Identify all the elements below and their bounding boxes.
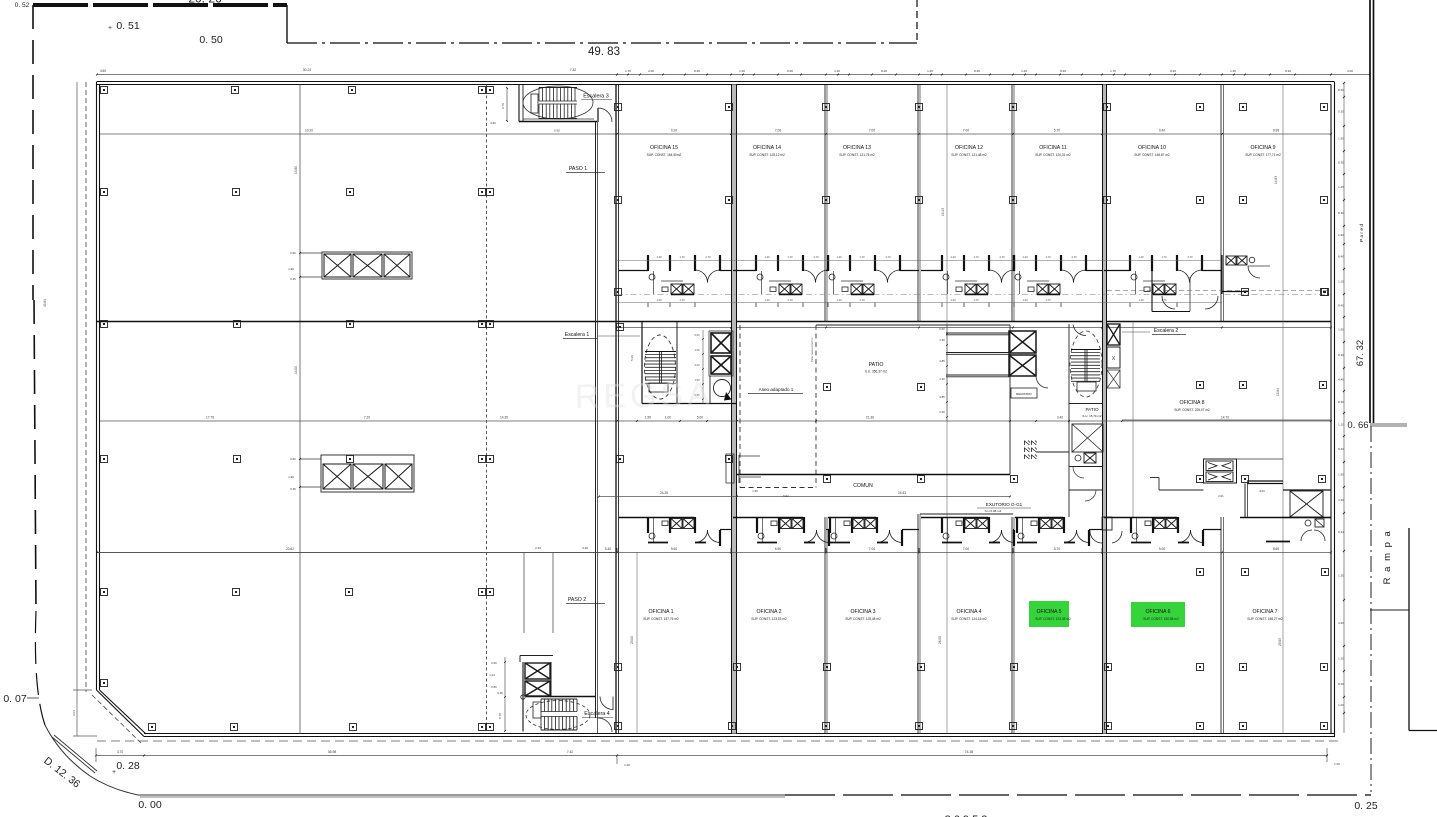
svg-text:PASO 2: PASO 2: [568, 597, 586, 603]
svg-text:1.30: 1.30: [939, 338, 945, 342]
svg-text:67. 32: 67. 32: [1355, 340, 1366, 366]
svg-text:1.40: 1.40: [836, 255, 842, 259]
svg-text:Escalera 4: Escalera 4: [584, 711, 609, 717]
svg-text:10.20: 10.20: [305, 129, 313, 133]
svg-text:2.70: 2.70: [1071, 255, 1077, 259]
svg-text:REGSA: REGSA: [574, 376, 714, 416]
svg-text:1.00: 1.00: [665, 416, 671, 420]
svg-text:8.40: 8.40: [1338, 682, 1344, 686]
svg-text:7.00: 7.00: [775, 129, 781, 133]
svg-text:19.43: 19.43: [941, 208, 945, 216]
svg-text:1.00: 1.00: [1338, 703, 1344, 707]
svg-text:OFICINA 11: OFICINA 11: [1039, 145, 1067, 151]
svg-text:OFICINA 12: OFICINA 12: [955, 145, 983, 151]
svg-text:1.70: 1.70: [787, 298, 793, 302]
svg-text:S.U. 15,79 m2: S.U. 15,79 m2: [1082, 414, 1102, 418]
svg-text:1.90: 1.90: [288, 475, 294, 479]
svg-text:8.20: 8.20: [974, 69, 980, 73]
svg-text:1.90: 1.90: [288, 267, 294, 271]
svg-text:SUP. CONST. 121,76 m2: SUP. CONST. 121,76 m2: [839, 153, 875, 157]
svg-text:14.35: 14.35: [500, 416, 508, 420]
svg-text:4.60: 4.60: [100, 69, 106, 73]
svg-text:5.00: 5.00: [697, 416, 703, 420]
svg-text:0.80: 0.80: [491, 685, 497, 689]
svg-text:49.84: 49.84: [43, 299, 47, 307]
svg-text:3.00: 3.00: [1347, 69, 1353, 73]
svg-text:1.70: 1.70: [679, 255, 685, 259]
svg-text:0.60: 0.60: [939, 327, 945, 331]
svg-text:0. 52: 0. 52: [15, 2, 30, 9]
svg-text:1.30: 1.30: [1338, 574, 1344, 578]
svg-text:4.40: 4.40: [1338, 498, 1344, 502]
svg-text:13.80: 13.80: [294, 166, 298, 174]
svg-text:8.79: 8.79: [501, 103, 505, 109]
svg-text:Aseo adaptado 1: Aseo adaptado 1: [759, 387, 794, 392]
svg-text:1.70: 1.70: [1045, 298, 1051, 302]
svg-text:5.92: 5.92: [554, 129, 560, 133]
svg-text:8.20: 8.20: [787, 69, 793, 73]
svg-text:7.42: 7.42: [570, 68, 576, 72]
svg-text:Escalera 1: Escalera 1: [565, 332, 590, 338]
svg-text:1.40: 1.40: [1022, 255, 1028, 259]
svg-text:4.03: 4.03: [1259, 489, 1265, 493]
svg-text:8.40: 8.40: [1338, 255, 1344, 259]
svg-text:5.70: 5.70: [1054, 129, 1060, 133]
svg-text:9.04: 9.04: [72, 710, 76, 716]
svg-text:OFICINA 7: OFICINA 7: [1252, 609, 1277, 615]
svg-text:8.30: 8.30: [1338, 161, 1344, 165]
svg-text:4.85: 4.85: [939, 395, 945, 399]
svg-text:SUP. CONST. 148,87 m2: SUP. CONST. 148,87 m2: [1134, 153, 1170, 157]
svg-text:24.43: 24.43: [898, 491, 906, 495]
svg-text:0. 00: 0. 00: [138, 799, 162, 811]
svg-text:1.40: 1.40: [1138, 255, 1144, 259]
svg-text:2.00: 2.00: [648, 69, 654, 73]
svg-text:1.40: 1.40: [1138, 298, 1144, 302]
svg-text:P a r e d: P a r e d: [1359, 224, 1365, 242]
svg-text:8.60: 8.60: [1338, 88, 1344, 92]
svg-text:23.00: 23.00: [630, 636, 634, 644]
svg-text:9.95: 9.95: [1273, 129, 1279, 133]
svg-text:1.45: 1.45: [1338, 185, 1344, 189]
svg-text:5.92: 5.92: [783, 494, 789, 498]
svg-text:1.40: 1.40: [1021, 69, 1027, 73]
svg-text:1.70: 1.70: [1110, 69, 1116, 73]
svg-text:1.40: 1.40: [1230, 69, 1236, 73]
svg-text:OFICINA 15: OFICINA 15: [650, 145, 678, 151]
svg-text:OFICINA 8: OFICINA 8: [1179, 400, 1204, 406]
svg-text:2.01: 2.01: [1218, 494, 1224, 498]
svg-text:1.40: 1.40: [739, 69, 745, 73]
svg-text:1.40: 1.40: [656, 298, 662, 302]
svg-text:1.40: 1.40: [764, 255, 770, 259]
svg-text:4.40: 4.40: [1338, 621, 1344, 625]
svg-text:8.30: 8.30: [1338, 353, 1344, 357]
svg-text:1.90: 1.90: [1338, 473, 1344, 477]
svg-text:1.40: 1.40: [836, 298, 842, 302]
svg-text:1.70: 1.70: [787, 255, 793, 259]
svg-text:8.20: 8.20: [881, 69, 887, 73]
svg-text:Escalera 2: Escalera 2: [1154, 328, 1179, 334]
svg-text:SUP. CONST. 150,88 m2: SUP. CONST. 150,88 m2: [1143, 617, 1179, 621]
svg-text:SUP. CONST. 177,71 m2: SUP. CONST. 177,71 m2: [1245, 153, 1281, 157]
svg-text:0. 25: 0. 25: [1354, 800, 1378, 812]
svg-text:2.70: 2.70: [813, 255, 819, 259]
svg-text:1.40: 1.40: [950, 298, 956, 302]
svg-text:1.70: 1.70: [973, 298, 979, 302]
svg-text:6.90: 6.90: [775, 547, 781, 551]
svg-text:1.40: 1.40: [1022, 298, 1028, 302]
svg-text:0. 50: 0. 50: [199, 34, 223, 46]
svg-text:1.90: 1.90: [1338, 137, 1344, 141]
svg-text:8.30: 8.30: [1338, 400, 1344, 404]
svg-text:30.22: 30.22: [303, 68, 312, 72]
svg-text:0.45: 0.45: [290, 487, 296, 491]
svg-text:1.40: 1.40: [656, 255, 662, 259]
svg-text:S.U. 356,37 m2: S.U. 356,37 m2: [865, 370, 887, 374]
svg-text:OFICINA 10: OFICINA 10: [1138, 145, 1166, 151]
svg-text:0.45: 0.45: [290, 277, 296, 281]
svg-text:SUP. CONST. 164,50m2: SUP. CONST. 164,50m2: [647, 153, 682, 157]
svg-text:8.30: 8.30: [1338, 211, 1344, 215]
svg-text:1.50: 1.50: [752, 489, 758, 493]
svg-text:SUP. CONST. 123,03 m2: SUP. CONST. 123,03 m2: [751, 617, 787, 621]
svg-text:8.20: 8.20: [1170, 69, 1176, 73]
svg-text:1.50: 1.50: [645, 416, 651, 420]
svg-text:SUP. CONST. 125,12 m2: SUP. CONST. 125,12 m2: [749, 153, 785, 157]
svg-text:OFICINA 1: OFICINA 1: [648, 609, 673, 615]
svg-text:0.60: 0.60: [491, 661, 497, 665]
svg-text:21.36: 21.36: [866, 416, 874, 420]
svg-text:8.40: 8.40: [1338, 304, 1344, 308]
svg-text:OFICINA 2: OFICINA 2: [756, 609, 781, 615]
svg-text:0.60: 0.60: [290, 251, 296, 255]
svg-text:17.75: 17.75: [206, 416, 214, 420]
svg-text:2.70: 2.70: [1187, 255, 1193, 259]
svg-text:OFICINA 13: OFICINA 13: [843, 145, 871, 151]
svg-text:8.20: 8.20: [1060, 69, 1066, 73]
svg-text:1.70: 1.70: [973, 255, 979, 259]
svg-text:7.00: 7.00: [869, 129, 875, 133]
svg-text:1.44: 1.44: [489, 673, 495, 677]
svg-text:74.35: 74.35: [965, 750, 974, 754]
svg-text:14.63: 14.63: [1274, 176, 1278, 184]
svg-text:7.00: 7.00: [869, 547, 875, 551]
svg-text:1.90: 1.90: [1338, 328, 1344, 332]
svg-text:OFICINA 3: OFICINA 3: [850, 609, 875, 615]
svg-text:4.40: 4.40: [1338, 378, 1344, 382]
svg-text:3.70: 3.70: [117, 750, 123, 754]
svg-text:8.70: 8.70: [498, 713, 502, 719]
svg-text:5.30: 5.30: [1338, 110, 1344, 114]
svg-text:SUP. CONST. 157,76 m2: SUP. CONST. 157,76 m2: [643, 617, 679, 621]
svg-text:0. 66: 0. 66: [1347, 420, 1368, 431]
svg-text:SUP. CONST. 158,27 m2: SUP. CONST. 158,27 m2: [1247, 617, 1283, 621]
svg-text:1.70: 1.70: [1161, 255, 1167, 259]
svg-text:3.40: 3.40: [1057, 416, 1063, 420]
svg-text:7.42: 7.42: [567, 750, 573, 754]
svg-text:3.40: 3.40: [582, 546, 588, 550]
svg-text:SUP. CONST. 226,07 m2: SUP. CONST. 226,07 m2: [1174, 408, 1210, 412]
svg-text:EXUTORIO G-G1: EXUTORIO G-G1: [986, 502, 1023, 507]
svg-text:49. 83: 49. 83: [588, 46, 620, 58]
svg-text:2.30: 2.30: [939, 410, 945, 414]
svg-text:R a m p a: R a m p a: [1382, 530, 1393, 585]
svg-text:7.20: 7.20: [364, 416, 370, 420]
svg-text:1.00: 1.00: [1334, 762, 1340, 766]
svg-text:9.20: 9.20: [671, 129, 677, 133]
svg-text:1.70: 1.70: [1045, 255, 1051, 259]
svg-text:26.00: 26.00: [938, 636, 942, 644]
svg-text:1.40: 1.40: [834, 69, 840, 73]
svg-text:5.70: 5.70: [1054, 547, 1060, 551]
svg-text:7.00: 7.00: [963, 547, 969, 551]
svg-text:1.70: 1.70: [625, 69, 631, 73]
svg-text:0.45: 0.45: [497, 691, 503, 695]
svg-text:PATIO: PATIO: [869, 362, 884, 368]
svg-text:0.60: 0.60: [694, 333, 700, 337]
svg-text:8.20: 8.20: [1285, 69, 1291, 73]
svg-text:24.25: 24.25: [660, 491, 668, 495]
svg-text:14.00: 14.00: [294, 366, 298, 374]
svg-text:1.90: 1.90: [1338, 233, 1344, 237]
svg-text:2.70: 2.70: [885, 255, 891, 259]
svg-text:1.00: 1.00: [624, 763, 630, 767]
svg-text:1.25: 1.25: [927, 69, 933, 73]
svg-text:1.10: 1.10: [1338, 423, 1344, 427]
svg-text:9.60: 9.60: [671, 547, 677, 551]
svg-text:0. 51: 0. 51: [116, 20, 140, 32]
svg-text:COMUN: COMUN: [853, 483, 873, 489]
svg-text:0. 28: 0. 28: [116, 760, 140, 772]
svg-text:9.00: 9.00: [1159, 547, 1165, 551]
svg-text:5.40: 5.40: [605, 547, 611, 551]
svg-text:0.60: 0.60: [290, 457, 296, 461]
svg-text:1.70: 1.70: [679, 298, 685, 302]
svg-text:1.20: 1.20: [1338, 657, 1344, 661]
svg-text:OFICINA 14: OFICINA 14: [753, 145, 781, 151]
svg-text:8.40: 8.40: [1338, 447, 1344, 451]
svg-text:+: +: [108, 25, 112, 32]
svg-text:1.10: 1.10: [1338, 280, 1344, 284]
svg-text:OFICINA 5: OFICINA 5: [1036, 609, 1061, 615]
svg-text:SUP. CONST. 123,05 m2: SUP. CONST. 123,05 m2: [1035, 617, 1071, 621]
svg-text:25.65: 25.65: [1278, 638, 1282, 646]
svg-text:4.85: 4.85: [939, 359, 945, 363]
svg-text:5.30: 5.30: [630, 355, 634, 361]
svg-text:Escalera 3: Escalera 3: [583, 94, 608, 100]
svg-text:SUP. CONST. 125,48 m2: SUP. CONST. 125,48 m2: [845, 617, 881, 621]
svg-text:4.20: 4.20: [694, 363, 700, 367]
svg-text:PASO 1: PASO 1: [569, 166, 587, 172]
svg-text:8.65: 8.65: [1273, 547, 1279, 551]
svg-text:PATIO: PATIO: [1085, 407, 1099, 412]
svg-text:1.40: 1.40: [764, 298, 770, 302]
svg-text:SUP. CONST. 121,48 m2: SUP. CONST. 121,48 m2: [951, 153, 987, 157]
svg-text:1.70: 1.70: [859, 255, 865, 259]
svg-text:SUP. CONST. 120,31 m2: SUP. CONST. 120,31 m2: [1035, 153, 1071, 157]
svg-text:S.U 0.98 m2: S.U 0.98 m2: [985, 509, 1002, 513]
svg-text:4.60: 4.60: [490, 121, 496, 125]
svg-text:20. 26: 20. 26: [188, 0, 222, 6]
svg-text:8.20: 8.20: [694, 69, 700, 73]
svg-text:OFICINA 6: OFICINA 6: [1145, 609, 1170, 615]
svg-text:1.50: 1.50: [694, 348, 700, 352]
svg-text:OFICINA 4: OFICINA 4: [956, 609, 981, 615]
svg-text:1.40: 1.40: [950, 255, 956, 259]
svg-text:1.70: 1.70: [859, 298, 865, 302]
svg-text:REGISTRO: REGISTRO: [1016, 392, 1032, 396]
svg-text:36.98: 36.98: [328, 750, 337, 754]
svg-text:2.70: 2.70: [705, 255, 711, 259]
svg-text:9.40: 9.40: [1159, 129, 1165, 133]
svg-text:1.30: 1.30: [939, 377, 945, 381]
svg-text:OFICINA 9: OFICINA 9: [1250, 145, 1275, 151]
svg-text:19.64: 19.64: [1276, 388, 1280, 396]
svg-text:2.34: 2.34: [535, 546, 541, 550]
svg-text:2.70: 2.70: [999, 255, 1005, 259]
svg-text:SUP. CONST. 124,16 m2: SUP. CONST. 124,16 m2: [951, 617, 987, 621]
svg-text:Patio hasta el techo: Patio hasta el techo: [810, 337, 814, 362]
svg-text:7.00: 7.00: [963, 129, 969, 133]
svg-text:8.44: 8.44: [1338, 530, 1344, 534]
svg-text:0. 07: 0. 07: [3, 693, 27, 705]
svg-text:20.62: 20.62: [286, 547, 294, 551]
svg-text:14.70: 14.70: [1221, 416, 1229, 420]
